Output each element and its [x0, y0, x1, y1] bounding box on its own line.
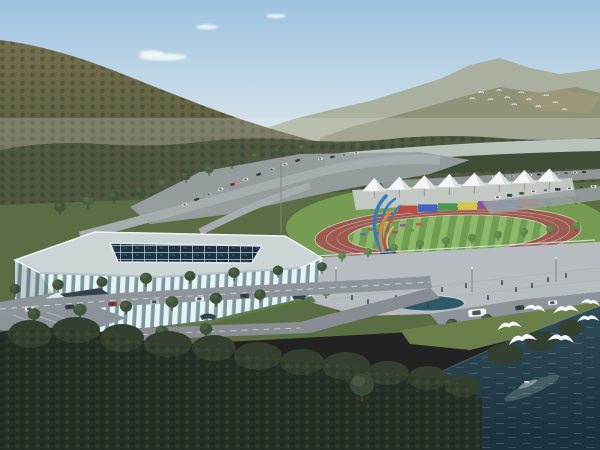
forest-texture: [0, 328, 482, 450]
screenshot-root: [0, 0, 600, 450]
arena-roof-skylight: [110, 243, 262, 263]
scene-rendering: [0, 0, 600, 450]
small-boat: [524, 381, 529, 383]
